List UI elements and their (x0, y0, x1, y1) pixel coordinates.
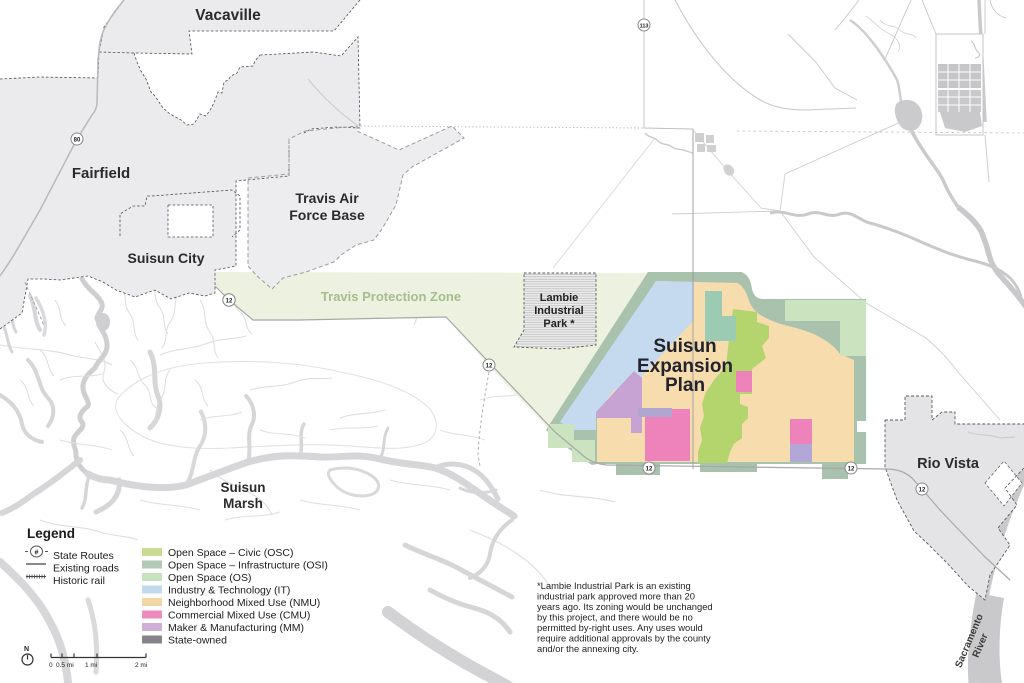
svg-text:permitted by-right uses. Any u: permitted by-right uses. Any uses would (537, 622, 703, 633)
svg-text:Fairfield: Fairfield (72, 165, 130, 182)
svg-text:12: 12 (646, 467, 653, 473)
svg-text:State Routes: State Routes (53, 550, 114, 562)
svg-text:Historic rail: Historic rail (53, 575, 105, 587)
svg-text:N: N (24, 646, 29, 653)
svg-text:Suisun: Suisun (220, 480, 265, 495)
svg-text:Open Space (OS): Open Space (OS) (168, 572, 251, 584)
svg-text:Rio Vista: Rio Vista (917, 456, 980, 472)
svg-text:12: 12 (919, 488, 926, 494)
svg-text:years ago. Its zoning would be: years ago. Its zoning would be unchanged (537, 601, 713, 612)
svg-text:2 mi: 2 mi (135, 662, 147, 669)
svg-text:1 mi: 1 mi (85, 662, 97, 669)
svg-text:Travis Protection Zone: Travis Protection Zone (321, 289, 461, 304)
svg-text:#: # (35, 550, 39, 557)
svg-text:and/or the annexing city.: and/or the annexing city. (537, 643, 638, 654)
svg-text:Suisun City: Suisun City (127, 250, 204, 266)
svg-text:Open Space – Infrastructure (O: Open Space – Infrastructure (OSI) (168, 560, 328, 572)
svg-text:12: 12 (486, 364, 493, 370)
svg-text:Vacaville: Vacaville (195, 7, 261, 24)
svg-text:Industry & Technology (IT): Industry & Technology (IT) (168, 585, 290, 597)
svg-text:Neighborhood Mixed Use (NMU): Neighborhood Mixed Use (NMU) (168, 597, 320, 609)
svg-text:*Lambie Industrial Park is an: *Lambie Industrial Park is an existing (537, 580, 691, 591)
svg-text:Legend: Legend (27, 526, 75, 541)
svg-text:Lambie: Lambie (540, 292, 579, 304)
svg-text:80: 80 (74, 138, 81, 144)
svg-text:require additional approvals b: require additional approvals by the coun… (537, 633, 711, 644)
svg-text:Marsh: Marsh (223, 496, 263, 511)
svg-text:by this project, and there wou: by this project, and there would be no (537, 612, 693, 623)
svg-text:Open Space – Civic (OSC): Open Space – Civic (OSC) (168, 547, 293, 559)
svg-text:Industrial: Industrial (534, 305, 584, 317)
svg-text:113: 113 (640, 24, 649, 30)
svg-text:Suisun: Suisun (653, 336, 716, 357)
svg-text:Park *: Park * (543, 318, 575, 330)
svg-text:Maker & Manufacturing (MM): Maker & Manufacturing (MM) (168, 622, 304, 634)
svg-text:12: 12 (848, 467, 855, 473)
svg-text:0.5 mi: 0.5 mi (56, 662, 74, 669)
svg-text:12: 12 (226, 299, 233, 305)
svg-text:State-owned: State-owned (168, 635, 227, 647)
svg-text:Travis Air: Travis Air (295, 190, 359, 206)
svg-text:0: 0 (49, 662, 53, 669)
svg-text:Plan: Plan (665, 375, 705, 396)
svg-text:Force Base: Force Base (289, 207, 365, 223)
svg-text:Existing roads: Existing roads (53, 563, 119, 575)
svg-text:industrial park approved more: industrial park approved more than 20 (537, 591, 695, 602)
svg-text:Commercial Mixed Use (CMU): Commercial Mixed Use (CMU) (168, 610, 310, 622)
svg-text:Expansion: Expansion (637, 356, 733, 377)
